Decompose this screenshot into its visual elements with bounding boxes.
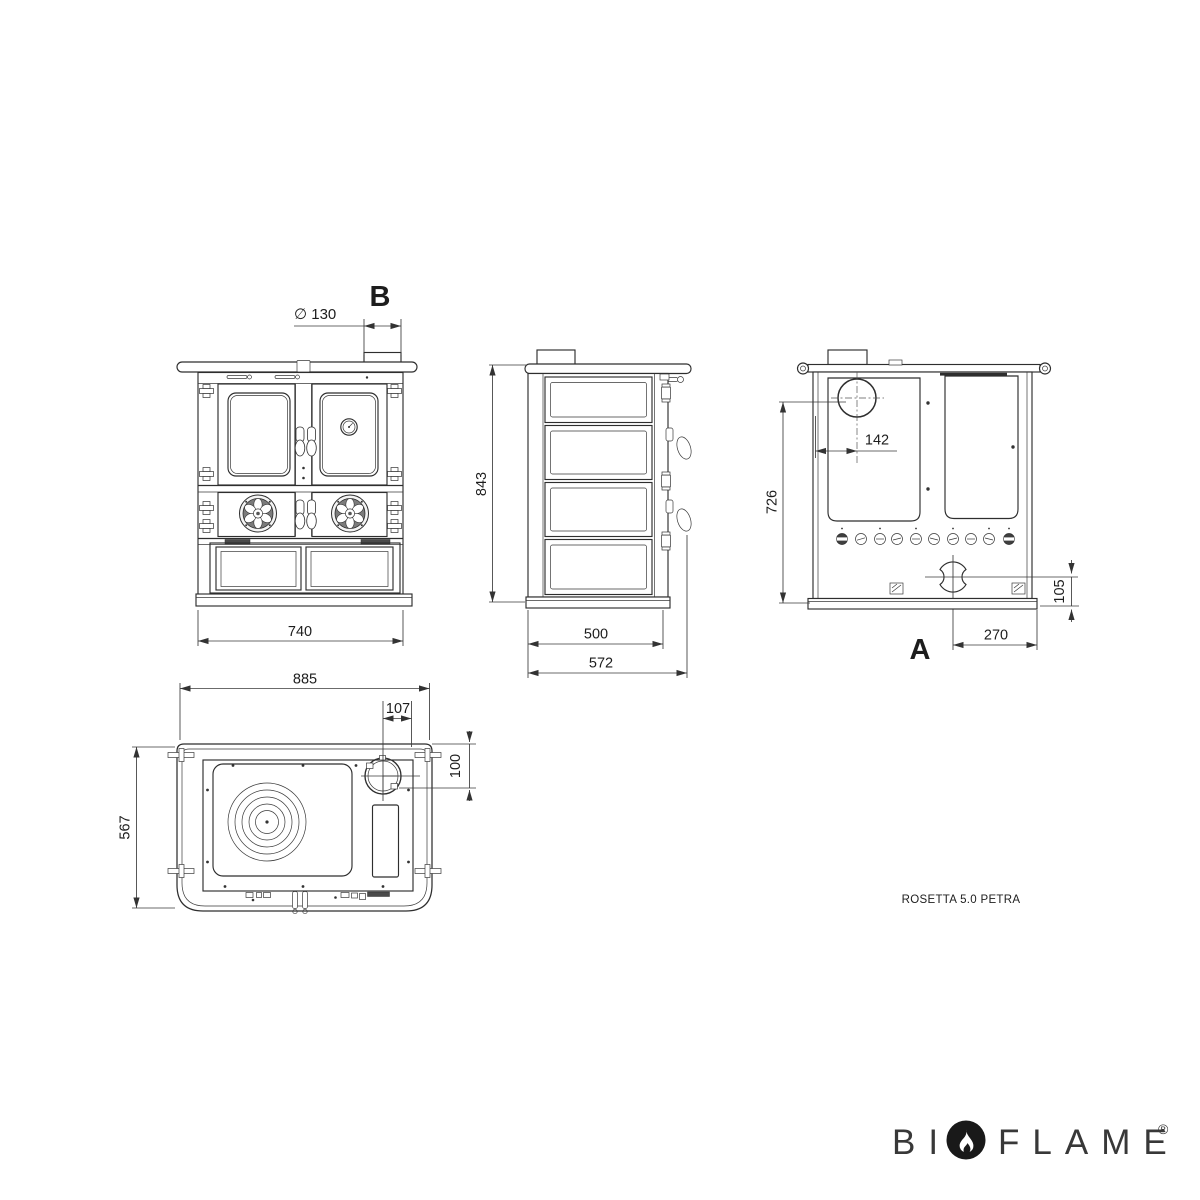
rail-end-knob	[1040, 363, 1051, 374]
stove-dimension-drawing: 740 ∅ 130 B	[0, 0, 1200, 1200]
logo-prefix: BI	[892, 1123, 951, 1162]
registered-trademark-icon: ®	[1158, 1121, 1169, 1137]
rear-top-rail	[808, 365, 1040, 373]
bioflame-logo: BI FLAME ®	[892, 1121, 1180, 1163]
technical-drawing-page: 740 ∅ 130 B	[0, 0, 1200, 1200]
dim-top-depth: 567	[118, 815, 134, 839]
side-top-rail	[525, 364, 691, 374]
front-view-label: B	[370, 281, 391, 313]
rear-foot-bracket	[890, 583, 903, 594]
dim-top-width-overall: 885	[293, 672, 317, 688]
side-flue-stub	[537, 350, 575, 365]
rear-view: 726 142 105 270 A	[765, 350, 1080, 666]
front-base	[196, 594, 412, 606]
rosette-air-vent	[240, 495, 277, 532]
model-name-label: ROSETTA 5.0 PETRA	[902, 894, 1021, 906]
dim-side-depth-overall: 572	[589, 656, 613, 672]
rear-base	[808, 599, 1037, 610]
dim-rear-flue-height: 726	[765, 490, 781, 514]
dim-side-depth-body: 500	[584, 627, 608, 643]
top-outer-rail	[177, 744, 432, 911]
side-base	[526, 597, 670, 608]
dim-rear-outlet-offset: 270	[984, 628, 1008, 644]
oven-thermometer-icon	[341, 419, 357, 435]
dim-rear-flue-offset: 142	[865, 433, 889, 449]
rear-foot-bracket	[1012, 583, 1025, 594]
dim-flue-diameter: ∅ 130	[294, 306, 336, 323]
dim-top-flue-offset: 107	[386, 701, 410, 717]
front-view: 740 ∅ 130 B	[177, 281, 417, 646]
rear-flue-stub	[828, 350, 867, 365]
side-lower-handle	[674, 507, 693, 533]
rear-view-label: A	[910, 634, 931, 666]
logo-suffix: FLAME	[998, 1123, 1180, 1162]
rear-body	[813, 372, 1032, 599]
rosette-air-vent	[332, 495, 369, 532]
flame-badge-icon	[947, 1121, 986, 1160]
rail-end-knob	[798, 363, 809, 374]
dim-side-height: 843	[474, 472, 490, 496]
dim-rear-outlet-height: 105	[1052, 579, 1068, 603]
dim-front-width: 740	[288, 624, 312, 640]
side-door-handle	[674, 435, 693, 461]
side-view: 843 500 572	[474, 350, 694, 678]
side-body	[528, 374, 668, 598]
damper-lever-icon	[678, 377, 684, 383]
top-view: 885 107 100 567	[118, 672, 477, 914]
dim-top-flue-from-edge: 100	[448, 754, 464, 778]
